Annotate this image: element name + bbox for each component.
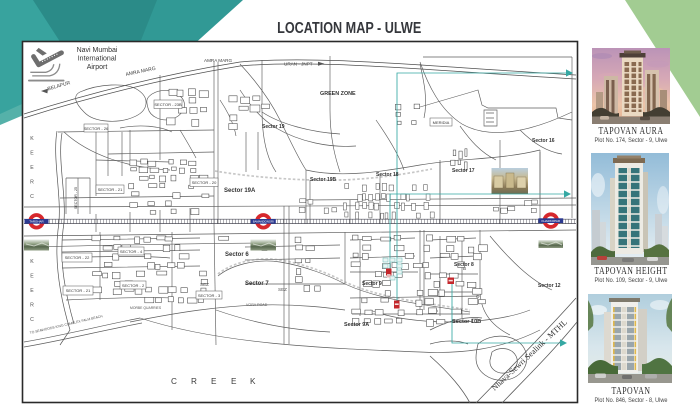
svg-text:E: E [30,274,34,280]
svg-text:Sector 10B: Sector 10B [452,319,481,325]
svg-text:MERIDIA: MERIDIA [433,120,450,125]
svg-text:SECTOR - 4: SECTOR - 4 [120,249,143,254]
svg-text:E: E [231,377,237,386]
svg-text:International: International [78,56,117,63]
svg-text:SEZ: SEZ [278,287,287,292]
svg-text:SECTOR - 23B: SECTOR - 23B [154,102,182,107]
svg-text:Airport: Airport [87,64,108,71]
svg-text:C: C [30,317,34,323]
svg-text:R: R [30,180,34,186]
svg-text:SECTOR - 21: SECTOR - 21 [66,288,91,293]
svg-text:C: C [171,377,177,386]
svg-text:E: E [211,377,217,386]
svg-text:BAMANDONGRI: BAMANDONGRI [253,220,274,224]
svg-text:Sector 8: Sector 8 [454,262,474,268]
svg-text:Sector 6: Sector 6 [225,252,249,258]
svg-text:URAN - JNPT: URAN - JNPT [284,62,313,67]
svg-text:K: K [250,377,256,386]
svg-text:E: E [30,151,34,157]
svg-text:Sector 19B: Sector 19B [310,177,337,183]
svg-text:GREEN ZONE: GREEN ZONE [320,91,356,97]
svg-text:K: K [30,136,34,142]
svg-text:C: C [30,194,34,200]
svg-text:KHARKOPAR: KHARKOPAR [541,219,560,223]
svg-text:Sector 9: Sector 9 [362,281,382,287]
svg-text:K: K [30,259,34,265]
svg-text:TARGHAR: TARGHAR [29,220,44,224]
svg-text:Sector 7: Sector 7 [245,281,269,287]
svg-text:Sector 19: Sector 19 [262,124,285,130]
svg-text:SECTOR - 20: SECTOR - 20 [192,180,217,185]
svg-text:E: E [30,288,34,294]
svg-text:SECTOR - 21: SECTOR - 21 [98,187,123,192]
svg-text:Sector 17: Sector 17 [452,168,475,174]
svg-text:Sector 12: Sector 12 [538,283,561,289]
svg-text:R: R [30,303,34,309]
svg-text:SECTOR - 2: SECTOR - 2 [122,283,145,288]
svg-text:SECTOR - 26: SECTOR - 26 [84,126,109,131]
svg-text:SECTOR - 25: SECTOR - 25 [74,187,78,209]
svg-text:Navi Mumbai: Navi Mumbai [77,47,118,54]
svg-text:SECTOR - 3: SECTOR - 3 [198,293,221,298]
svg-text:Sector 9A: Sector 9A [344,322,369,328]
svg-text:E: E [30,165,34,171]
svg-text:VORA ROAD: VORA ROAD [246,303,268,307]
svg-text:Sector 16: Sector 16 [532,138,555,144]
svg-text:MORBE QUARRIES: MORBE QUARRIES [130,306,162,310]
svg-text:Sector 18: Sector 18 [376,172,399,178]
svg-text:SEZ: SEZ [200,282,209,287]
svg-text:SECTOR - 22: SECTOR - 22 [65,255,90,260]
svg-text:Sector 19A: Sector 19A [224,188,256,194]
svg-text:R: R [191,377,197,386]
svg-text:AMRA MARG: AMRA MARG [204,58,233,63]
